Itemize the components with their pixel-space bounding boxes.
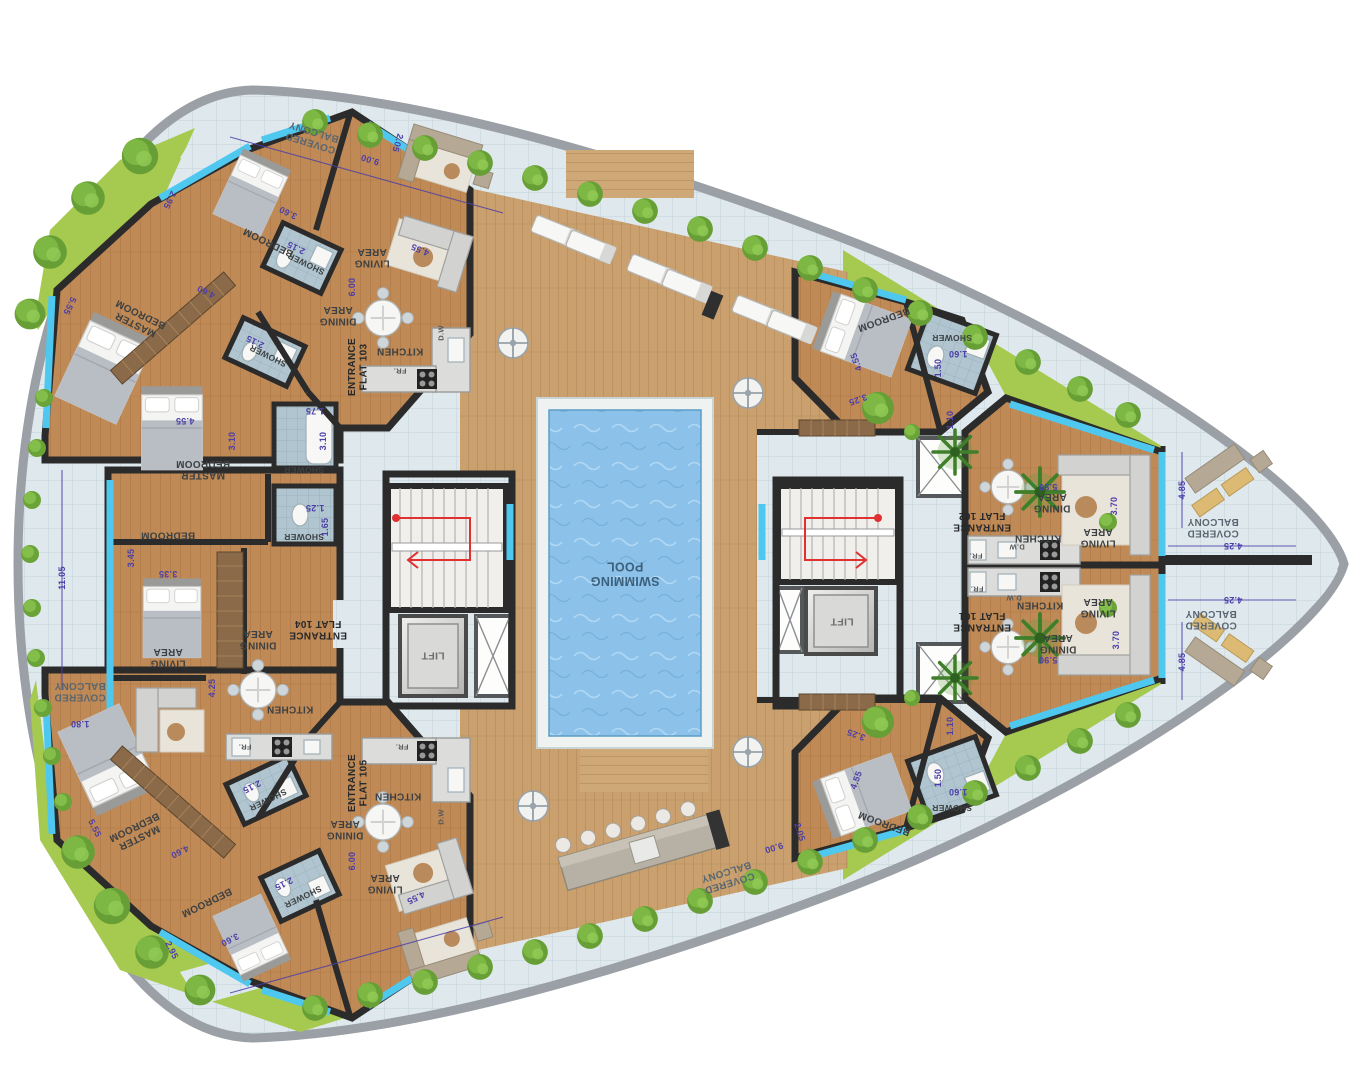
bed-icon <box>143 578 201 657</box>
tiny-label: FR. <box>971 584 984 593</box>
dim-label: 6.00 <box>347 852 357 871</box>
sofa <box>136 688 204 752</box>
tree-icon <box>357 982 383 1008</box>
dim-label: 4.25 <box>207 679 217 698</box>
bed-icon <box>142 386 203 470</box>
tiny-label: D.W <box>437 809 446 825</box>
dim-label: 3.35 <box>159 569 178 579</box>
dim-label: 1.80 <box>71 719 90 729</box>
bush-icon <box>35 389 53 407</box>
stove-icon <box>272 737 292 757</box>
room-label: LIVINGAREA <box>150 646 185 669</box>
room-label: LIVINGAREA <box>354 246 389 269</box>
room-label: DININGAREA <box>327 818 364 841</box>
room-label: BEDROOM <box>141 530 195 541</box>
tiny-label: FR. <box>396 742 409 751</box>
tree-icon <box>577 181 603 207</box>
dim-label: 6.00 <box>347 278 357 297</box>
bush-icon <box>904 690 920 706</box>
palm-icon <box>933 430 977 474</box>
umbrella-table-icon <box>498 328 528 358</box>
umbrella-table-icon <box>518 791 548 821</box>
lift-label: LIFT <box>421 649 445 661</box>
room-label: MASTERBEDROOM <box>176 458 230 481</box>
dim-label: 1.65 <box>320 518 330 537</box>
dim-label: 1.60 <box>949 787 968 797</box>
dim-label: 1.10 <box>945 717 955 736</box>
room-label: DININGAREA <box>1040 632 1077 655</box>
entrance-label: ENTRANCEFLAT 102 <box>953 510 1011 533</box>
tree-icon <box>797 849 823 875</box>
balcony-label: COVEREDBALCONY <box>54 680 106 703</box>
room-label: KITCHEN <box>1017 600 1064 611</box>
bush-icon <box>34 699 52 717</box>
dim-label: 3.45 <box>126 549 136 568</box>
bush-icon <box>28 439 46 457</box>
tree-icon <box>632 198 658 224</box>
tree-icon <box>357 122 383 148</box>
room-label: KITCHEN <box>1015 533 1062 544</box>
tiny-label: D.W <box>437 325 446 341</box>
dim-label: 4.25 <box>1224 595 1243 605</box>
entrance-label: ENTRANCEFLAT 103 <box>347 338 370 396</box>
room-label: DININGAREA <box>240 628 277 651</box>
dim-label: 1.75 <box>306 406 325 416</box>
tree-icon <box>15 299 46 330</box>
stove-icon <box>417 369 437 389</box>
tree-icon <box>135 935 169 969</box>
tree-icon <box>797 255 823 281</box>
bush-icon <box>54 793 72 811</box>
tiny-label: FR. <box>970 551 983 560</box>
dim-label: 4.85 <box>1177 481 1187 500</box>
dim-label: 4.85 <box>1177 653 1187 672</box>
dim-label: 1.50 <box>933 359 943 378</box>
room-label: SHOWER <box>284 532 324 542</box>
room-label: KITCHEN <box>377 346 424 357</box>
dim-label: 4.25 <box>1224 541 1243 551</box>
tree-icon <box>852 277 878 303</box>
bush-icon <box>23 491 41 509</box>
tree-icon <box>1115 702 1141 728</box>
tree-icon <box>1067 376 1093 402</box>
tree-icon <box>632 906 658 932</box>
entrance-label: ENTRANCEFLAT 104 <box>289 618 347 641</box>
room-label: LIVINGAREA <box>367 872 402 895</box>
dim-label: 5.90 <box>1039 655 1058 665</box>
umbrella-table-icon <box>733 737 763 767</box>
palm-icon <box>933 656 977 700</box>
bush-icon <box>21 545 39 563</box>
tiny-label: D.W <box>1006 593 1022 602</box>
tree-icon <box>907 804 933 830</box>
stove-icon <box>417 741 437 761</box>
core-left <box>386 474 512 706</box>
dim-label: 4.55 <box>176 416 195 426</box>
entrance-label: ENTRANCEFLAT 105 <box>347 754 370 812</box>
balcony-label: COVEREDBALCONY <box>1185 608 1237 631</box>
tree-icon <box>1015 349 1041 375</box>
wardrobe <box>799 420 875 436</box>
tree-icon <box>1067 728 1093 754</box>
dim-label: 1.60 <box>949 349 968 359</box>
dim-label: 5.90 <box>1039 482 1058 492</box>
balcony-label: COVEREDBALCONY <box>1187 516 1239 539</box>
tree-icon <box>412 969 438 995</box>
tiny-label: FR. <box>239 742 252 751</box>
tree-icon <box>862 706 894 738</box>
tree-icon <box>1015 755 1041 781</box>
tree-icon <box>412 135 438 161</box>
room-label: KITCHEN <box>267 704 314 715</box>
tree-icon <box>852 827 878 853</box>
bush-icon <box>27 649 45 667</box>
tree-icon <box>687 216 713 242</box>
dim-label: 1.10 <box>945 411 955 430</box>
floor-plan-page: Residential floor plan — pool deck level… <box>0 0 1357 1080</box>
wardrobe <box>217 552 243 668</box>
room-label: SHOWER <box>284 465 324 475</box>
umbrella-table-icon <box>733 378 763 408</box>
dim-label: 11.05 <box>57 566 67 590</box>
bush-icon <box>904 424 920 440</box>
tree-icon <box>742 235 768 261</box>
dim-label: 3.70 <box>1111 631 1121 650</box>
room-label: DININGAREA <box>320 304 357 327</box>
bush-icon <box>23 599 41 617</box>
tiny-label: D.W <box>1009 542 1025 551</box>
tree-icon <box>33 235 67 269</box>
tiny-label: FR. <box>394 366 407 375</box>
tree-icon <box>1115 402 1141 428</box>
room-label: SHOWER <box>932 333 972 343</box>
tree-icon <box>94 888 130 924</box>
stove-icon <box>1040 572 1060 592</box>
sofa <box>1058 575 1150 675</box>
lift-label: LIFT <box>830 615 854 627</box>
tree-icon <box>577 923 603 949</box>
tree-icon <box>467 150 493 176</box>
tree-icon <box>522 165 548 191</box>
dim-label: 3.10 <box>318 432 328 451</box>
wardrobe <box>799 694 875 710</box>
dim-label: 1.50 <box>933 769 943 788</box>
tree-icon <box>185 975 216 1006</box>
room-label: LIVINGAREA <box>1080 526 1115 549</box>
deck-steps-bottom <box>580 748 708 792</box>
dim-label: 3.10 <box>227 432 237 451</box>
dim-label: 3.70 <box>1109 497 1119 516</box>
dim-label: 1.25 <box>306 503 325 513</box>
bush-icon <box>43 747 61 765</box>
tree-icon <box>302 995 328 1021</box>
entrance-label: ENTRANCEFLAT 101 <box>953 610 1011 633</box>
floor-plan-svg: Residential floor plan — pool deck level… <box>0 0 1357 1080</box>
tree-icon <box>61 835 95 869</box>
tree-icon <box>71 181 105 215</box>
tree-icon <box>122 138 158 174</box>
room-label: SHOWER <box>932 803 972 813</box>
room-label: KITCHEN <box>375 791 422 802</box>
room-label: LIVINGAREA <box>1080 596 1115 619</box>
tree-icon <box>522 939 548 965</box>
room-label: DININGAREA <box>1034 491 1071 514</box>
tree-icon <box>467 954 493 980</box>
